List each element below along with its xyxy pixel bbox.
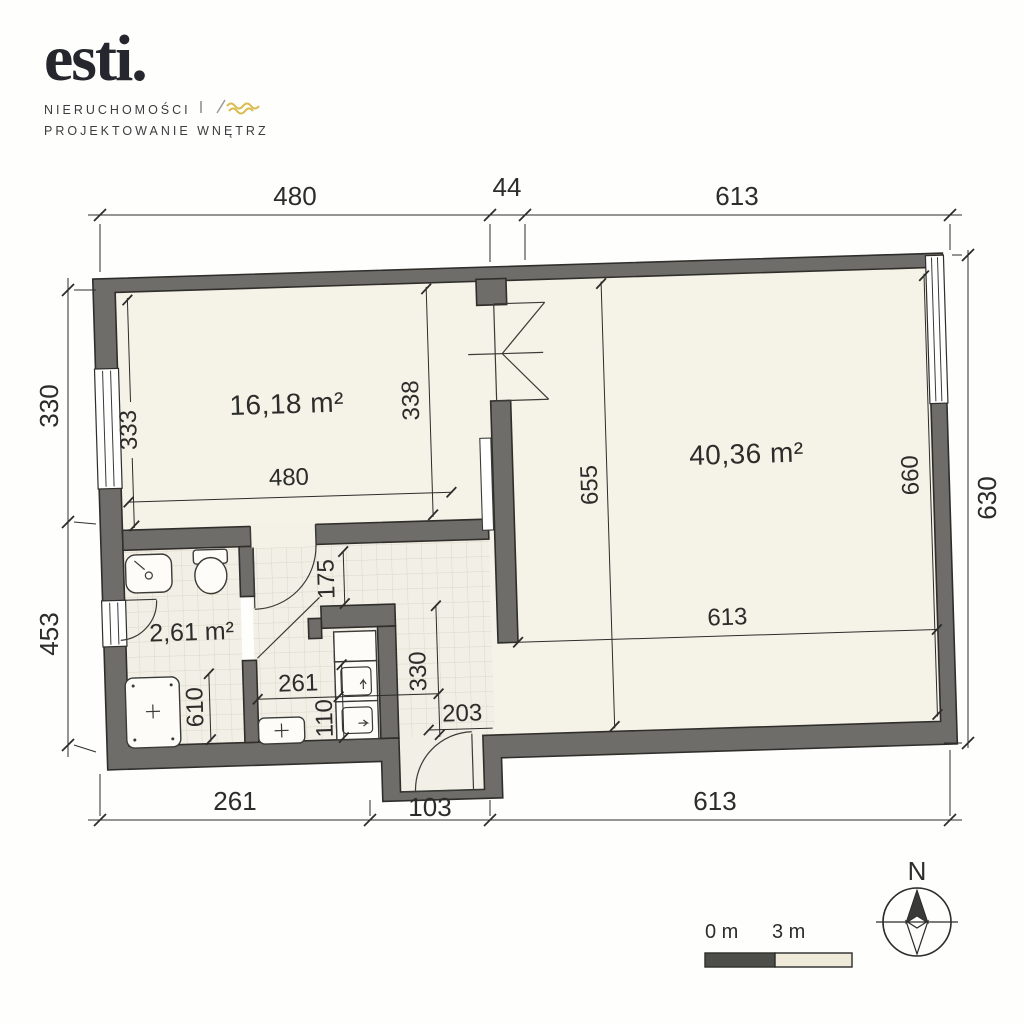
washing-machine <box>125 677 181 749</box>
sliding-door-panel <box>480 438 494 530</box>
wall-bath-east-top <box>239 546 255 596</box>
kitchen-counter <box>334 631 377 662</box>
dim-left-2: 453 <box>34 612 64 655</box>
dim-bottom-3: 613 <box>693 786 736 816</box>
scale-bar-light-segment <box>775 953 852 967</box>
scale-start-label: 0 m <box>705 921 738 943</box>
wall-room-hall-right <box>315 519 489 544</box>
wall-room-hall-left <box>122 526 251 550</box>
toilet <box>193 549 228 594</box>
dim-large-room-bottom: 613 <box>707 603 748 631</box>
hall-radiator <box>258 717 305 744</box>
bathroom-sink <box>125 554 172 593</box>
scale-bar-dark-segment <box>705 953 775 967</box>
dim-right-1: 630 <box>972 476 1002 519</box>
dim-bottom-2: 103 <box>408 792 451 822</box>
wall-kitchen-top <box>321 604 396 628</box>
scale-end-label: 3 m <box>772 921 805 943</box>
bathroom-area-label: 2,61 m² <box>149 617 235 648</box>
scale-bar: 0 m 3 m <box>705 921 852 967</box>
wall-kitchen-step <box>308 618 322 638</box>
dim-bath-recess: 610 <box>181 687 209 728</box>
compass-north-needle <box>906 890 928 923</box>
window-large-room <box>925 255 948 403</box>
dim-entry-niche: 175 <box>312 559 340 600</box>
large-room-area-label: 40,36 m² <box>689 436 804 470</box>
wall-kitchen-side <box>377 626 398 738</box>
compass-south-needle <box>906 921 928 954</box>
dim-small-room-right: 338 <box>397 380 425 421</box>
dim-kitchen-run: 110 <box>311 699 339 738</box>
plan-body: 333 480 338 655 660 <box>92 253 960 810</box>
dim-corridor: 330 <box>404 651 432 692</box>
compass: N <box>876 856 958 956</box>
dim-small-room-bottom: 480 <box>268 464 309 492</box>
dim-left-1: 330 <box>34 384 64 427</box>
dim-large-room-right: 660 <box>897 455 925 496</box>
kitchen-units <box>334 631 379 740</box>
dim-large-room-left: 655 <box>576 465 604 506</box>
floorplan-drawing: 333 480 338 655 660 <box>0 0 1024 1024</box>
compass-north-label: N <box>908 856 927 886</box>
dim-entry-clearance: 203 <box>442 699 483 727</box>
dim-hall-width: 261 <box>278 669 319 697</box>
dim-small-room-left: 333 <box>115 410 143 451</box>
dim-bottom-1: 261 <box>213 786 256 816</box>
wall-pier-top <box>476 278 507 305</box>
dim-top-2: 44 <box>493 172 522 202</box>
large-room-floor <box>481 268 941 735</box>
small-room-area-label: 16,18 m² <box>229 386 344 420</box>
dim-top-1: 480 <box>273 181 316 211</box>
dim-top-3: 613 <box>715 181 758 211</box>
floorplan-page: esti. NIERUCHOMOŚCI PROJEKTOWANIE WNĘTRZ <box>0 0 1024 1024</box>
